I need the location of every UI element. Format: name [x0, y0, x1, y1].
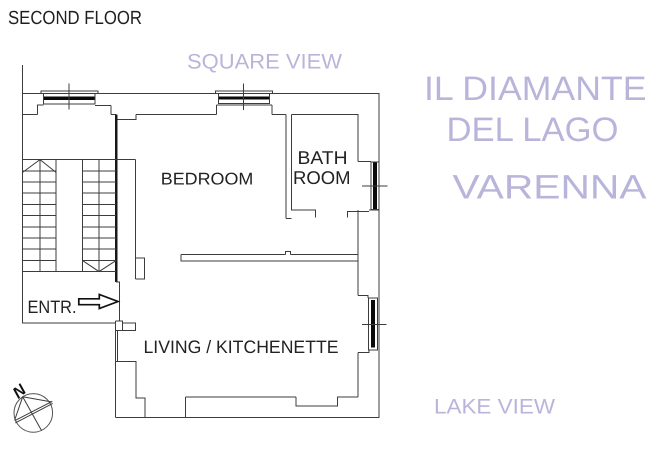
svg-text:LAKE VIEW: LAKE VIEW	[434, 396, 555, 419]
svg-text:IL DIAMANTE: IL DIAMANTE	[424, 70, 647, 108]
svg-text:BATH: BATH	[298, 147, 348, 168]
svg-text:LIVING / KITCHENETTE: LIVING / KITCHENETTE	[144, 337, 339, 357]
svg-text:DEL LAGO: DEL LAGO	[447, 111, 619, 149]
svg-text:SECOND FLOOR: SECOND FLOOR	[8, 8, 142, 29]
svg-text:ENTR.: ENTR.	[28, 297, 77, 317]
svg-text:ROOM: ROOM	[293, 167, 351, 188]
svg-text:SQUARE VIEW: SQUARE VIEW	[187, 50, 342, 73]
svg-text:VARENNA: VARENNA	[453, 169, 647, 207]
svg-text:BEDROOM: BEDROOM	[161, 170, 254, 189]
svg-text:N: N	[10, 381, 30, 402]
